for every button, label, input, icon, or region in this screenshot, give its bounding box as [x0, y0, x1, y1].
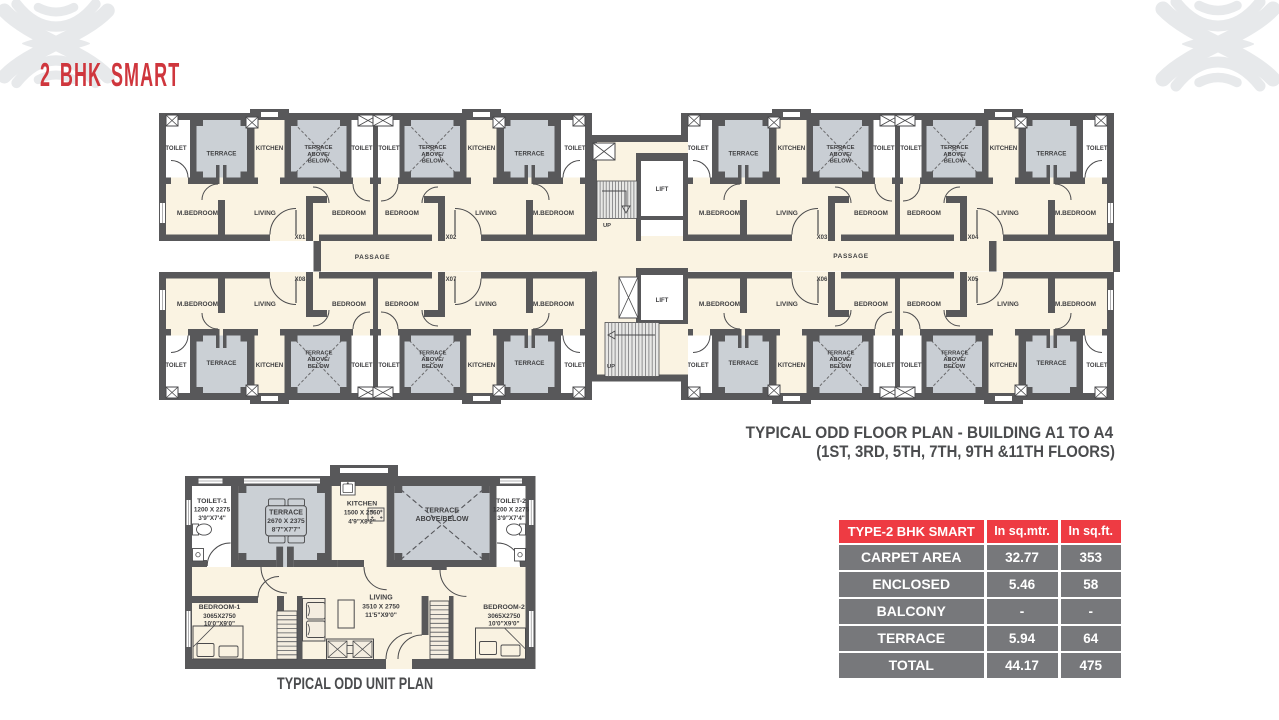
svg-text:TERRACE: TERRACE	[425, 508, 459, 515]
svg-text:TOILET: TOILET	[900, 363, 922, 369]
svg-text:M.BEDROOM: M.BEDROOM	[533, 210, 574, 217]
svg-text:X07: X07	[446, 277, 457, 283]
svg-text:M.BEDROOM: M.BEDROOM	[533, 301, 574, 308]
svg-text:M.BEDROOM: M.BEDROOM	[699, 210, 740, 217]
svg-text:UP: UP	[607, 364, 615, 370]
svg-text:TERRACE: TERRACE	[418, 145, 446, 151]
svg-text:M.BEDROOM: M.BEDROOM	[1055, 210, 1096, 217]
svg-text:KITCHEN: KITCHEN	[256, 362, 284, 369]
svg-text:PASSAGE: PASSAGE	[355, 254, 391, 261]
svg-text:TERRACE: TERRACE	[1037, 360, 1067, 367]
svg-text:4'9"X8'2": 4'9"X8'2"	[348, 518, 376, 525]
svg-text:ABOVE/: ABOVE/	[307, 152, 330, 158]
svg-text:BELOW: BELOW	[422, 364, 444, 370]
svg-text:ABOVE/: ABOVE/	[307, 357, 330, 363]
svg-text:BELOW: BELOW	[422, 159, 444, 165]
svg-text:TERRACE: TERRACE	[729, 151, 759, 158]
svg-text:TERRACE: TERRACE	[729, 360, 759, 367]
svg-text:M.BEDROOM: M.BEDROOM	[177, 301, 218, 308]
svg-text:TOILET: TOILET	[873, 146, 895, 152]
svg-text:BELOW: BELOW	[308, 364, 330, 370]
svg-text:TOILET: TOILET	[873, 363, 895, 369]
svg-text:M.BEDROOM: M.BEDROOM	[1055, 301, 1096, 308]
svg-text:TOILET: TOILET	[564, 363, 586, 369]
svg-text:TOILET: TOILET	[165, 363, 187, 369]
svg-text:KITCHEN: KITCHEN	[347, 501, 377, 508]
svg-text:TERRACE: TERRACE	[418, 351, 446, 357]
svg-text:BEDROOM: BEDROOM	[385, 210, 419, 217]
svg-text:BEDROOM: BEDROOM	[332, 301, 366, 308]
svg-text:ABOVE/: ABOVE/	[829, 357, 852, 363]
svg-text:10'0"X9'0": 10'0"X9'0"	[488, 621, 519, 628]
svg-text:X08: X08	[295, 277, 306, 283]
svg-text:KITCHEN: KITCHEN	[990, 145, 1018, 152]
svg-text:LIVING: LIVING	[254, 301, 276, 308]
svg-text:UP: UP	[603, 223, 611, 229]
svg-text:11'5"X9'0": 11'5"X9'0"	[365, 612, 397, 619]
svg-text:BELOW: BELOW	[944, 159, 966, 165]
svg-text:BELOW: BELOW	[830, 364, 852, 370]
svg-text:8'7"X7'7": 8'7"X7'7"	[272, 527, 300, 534]
svg-text:ABOVE/: ABOVE/	[421, 357, 444, 363]
svg-text:BEDROOM: BEDROOM	[332, 210, 366, 217]
svg-text:LIVING: LIVING	[475, 301, 497, 308]
svg-text:TERRACE: TERRACE	[304, 351, 332, 357]
svg-text:LIVING: LIVING	[369, 595, 393, 602]
svg-text:TERRACE: TERRACE	[940, 351, 968, 357]
svg-text:LIVING: LIVING	[997, 301, 1019, 308]
svg-text:LIVING: LIVING	[475, 210, 497, 217]
svg-text:X02: X02	[446, 235, 457, 241]
svg-text:X06: X06	[817, 277, 828, 283]
svg-text:KITCHEN: KITCHEN	[468, 362, 496, 369]
svg-text:LIFT: LIFT	[656, 298, 669, 304]
svg-text:3'9"X7'4": 3'9"X7'4"	[198, 515, 226, 522]
svg-text:2670 X 2375: 2670 X 2375	[267, 518, 305, 525]
svg-text:TOILET: TOILET	[165, 146, 187, 152]
svg-text:KITCHEN: KITCHEN	[778, 145, 806, 152]
svg-text:TERRACE: TERRACE	[515, 151, 545, 158]
svg-text:PASSAGE: PASSAGE	[833, 253, 869, 260]
svg-text:TERRACE: TERRACE	[515, 360, 545, 367]
svg-text:ABOVE/BELOW: ABOVE/BELOW	[416, 516, 469, 523]
svg-text:X04: X04	[968, 235, 979, 241]
svg-text:BEDROOM: BEDROOM	[907, 301, 941, 308]
svg-text:TERRACE: TERRACE	[207, 360, 237, 367]
svg-text:TOILET: TOILET	[687, 146, 709, 152]
svg-text:3'9"X7'4": 3'9"X7'4"	[497, 515, 525, 522]
svg-text:ABOVE/: ABOVE/	[421, 152, 444, 158]
svg-text:ABOVE/: ABOVE/	[829, 152, 852, 158]
svg-text:ABOVE/: ABOVE/	[943, 357, 966, 363]
svg-text:BELOW: BELOW	[830, 159, 852, 165]
svg-text:1200 X 2275: 1200 X 2275	[194, 507, 231, 514]
svg-text:TOILET: TOILET	[564, 146, 586, 152]
svg-text:TOILET: TOILET	[378, 363, 400, 369]
svg-text:3065X2750: 3065X2750	[203, 613, 236, 620]
svg-text:1200 X 2275: 1200 X 2275	[493, 507, 530, 514]
svg-text:TOILET-2: TOILET-2	[496, 498, 526, 505]
svg-text:10'0"X9'0": 10'0"X9'0"	[204, 621, 235, 628]
svg-text:TERRACE: TERRACE	[269, 510, 303, 517]
svg-text:BEDROOM: BEDROOM	[385, 301, 419, 308]
svg-text:KITCHEN: KITCHEN	[990, 362, 1018, 369]
svg-text:TERRACE: TERRACE	[826, 145, 854, 151]
svg-text:TERRACE: TERRACE	[940, 145, 968, 151]
svg-text:1500 X 2560: 1500 X 2560	[344, 510, 381, 517]
svg-text:BELOW: BELOW	[944, 364, 966, 370]
svg-text:TOILET: TOILET	[900, 146, 922, 152]
svg-text:TERRACE: TERRACE	[304, 145, 332, 151]
svg-text:LIVING: LIVING	[776, 210, 798, 217]
svg-text:TERRACE: TERRACE	[1037, 151, 1067, 158]
svg-text:BEDROOM-1: BEDROOM-1	[199, 604, 241, 611]
svg-text:BEDROOM: BEDROOM	[854, 210, 888, 217]
svg-text:TOILET: TOILET	[351, 146, 373, 152]
svg-text:LIVING: LIVING	[776, 301, 798, 308]
svg-text:TERRACE: TERRACE	[826, 351, 854, 357]
svg-text:LIVING: LIVING	[997, 210, 1019, 217]
svg-text:X05: X05	[968, 277, 979, 283]
svg-text:M.BEDROOM: M.BEDROOM	[699, 301, 740, 308]
svg-text:X03: X03	[817, 235, 828, 241]
svg-text:TERRACE: TERRACE	[207, 151, 237, 158]
svg-text:TOILET: TOILET	[687, 363, 709, 369]
svg-text:BEDROOM: BEDROOM	[854, 301, 888, 308]
svg-text:LIVING: LIVING	[254, 210, 276, 217]
svg-text:M.BEDROOM: M.BEDROOM	[177, 210, 218, 217]
svg-text:KITCHEN: KITCHEN	[778, 362, 806, 369]
svg-text:ABOVE/: ABOVE/	[943, 152, 966, 158]
svg-text:BEDROOM: BEDROOM	[907, 210, 941, 217]
svg-text:3510 X 2750: 3510 X 2750	[362, 604, 400, 611]
svg-text:TOILET: TOILET	[378, 146, 400, 152]
svg-text:BEDROOM-2: BEDROOM-2	[483, 604, 525, 611]
svg-text:X01: X01	[295, 235, 306, 241]
svg-text:TOILET-1: TOILET-1	[197, 498, 227, 505]
svg-text:3065X2750: 3065X2750	[488, 613, 521, 620]
svg-text:TOILET: TOILET	[1086, 363, 1108, 369]
svg-text:BELOW: BELOW	[308, 159, 330, 165]
svg-text:KITCHEN: KITCHEN	[256, 145, 284, 152]
svg-text:KITCHEN: KITCHEN	[468, 145, 496, 152]
svg-text:LIFT: LIFT	[656, 187, 669, 193]
svg-text:TOILET: TOILET	[351, 363, 373, 369]
svg-text:TOILET: TOILET	[1086, 146, 1108, 152]
